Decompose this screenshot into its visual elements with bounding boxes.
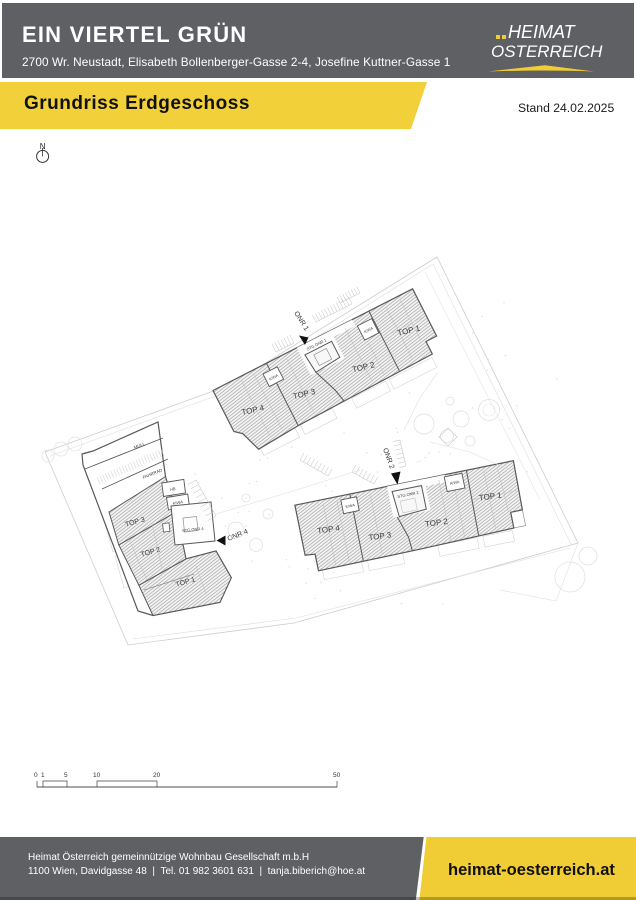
svg-text:10: 10 [93,772,101,779]
svg-text:ONR 2: ONR 2 [381,447,395,470]
svg-text:5: 5 [64,772,68,779]
svg-text:50: 50 [333,772,341,779]
svg-text:ONR 1: ONR 1 [292,310,309,332]
svg-text:1: 1 [41,772,45,779]
svg-text:20: 20 [153,772,161,779]
svg-text:0: 0 [34,772,38,779]
